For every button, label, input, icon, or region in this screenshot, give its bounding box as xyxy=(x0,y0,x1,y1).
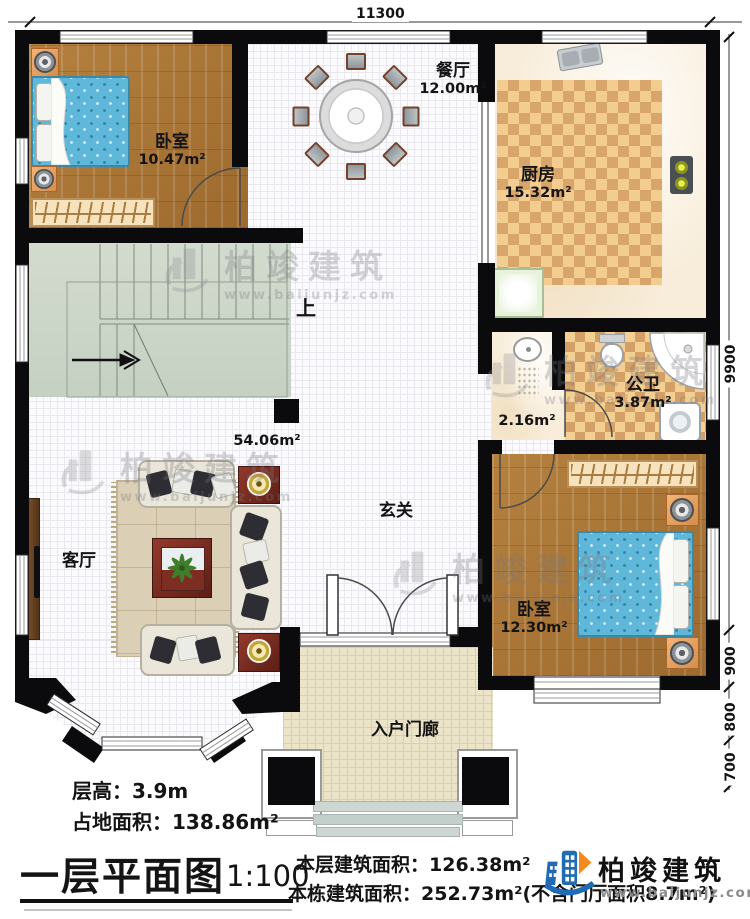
room-name: 客厅 xyxy=(62,552,96,571)
door-bathroom xyxy=(565,390,612,437)
window-right-bedroom2 xyxy=(707,528,719,620)
dim-top: 11300 xyxy=(352,6,409,22)
room-name: 入户门廊 xyxy=(371,721,439,740)
dim-right-900: 900 xyxy=(723,642,739,679)
room-label-porch: 入户门廊 xyxy=(371,721,439,740)
brand-url: www.baijunjz.com xyxy=(600,885,750,901)
room-label-living: 客厅 xyxy=(62,552,96,571)
stairs-arrow xyxy=(72,351,139,369)
door-bedroom1 xyxy=(182,168,240,226)
floor-area-text: 本层建筑面积：126.38m² xyxy=(296,850,530,877)
brand-name: 柏竣建筑 xyxy=(598,849,726,888)
room-name: 卧室 xyxy=(500,601,567,620)
room-label-foyer-area: 54.06m² xyxy=(233,433,300,449)
window-top-dining xyxy=(327,31,450,43)
land-area-text: 占地面积：138.86m² xyxy=(72,806,279,835)
plan-title-underline-light xyxy=(24,909,292,911)
room-area: 2.16m² xyxy=(498,413,555,429)
room-label-dining: 餐厅 12.00m² xyxy=(419,62,486,97)
dim-right-9900: 9900 xyxy=(723,341,739,388)
plan-title: 一层平面图 xyxy=(20,846,225,902)
floor-plan-page: 柏竣建筑www.baijunjz.com柏竣建筑www.baijunjz.com… xyxy=(0,0,750,919)
window-top-kitchen xyxy=(542,31,647,43)
window-right-bathroom xyxy=(707,345,719,420)
room-name: 餐厅 xyxy=(419,62,486,81)
room-area: 15.32m² xyxy=(504,185,571,201)
window-bottom-bedroom2 xyxy=(534,677,660,703)
door-bedroom2 xyxy=(500,454,554,508)
brand-block: 柏竣建筑 www.baijunjz.com xyxy=(540,843,750,909)
room-label-foyer: 玄关 xyxy=(379,502,413,521)
kitchen-sliding-door xyxy=(478,102,495,263)
room-name: 卧室 xyxy=(138,133,205,152)
brand-logo-icon xyxy=(542,847,596,905)
floor-height-text: 层高：3.9m xyxy=(72,775,188,804)
room-label-bathroom: 公卫 3.87m² xyxy=(614,376,671,411)
stairs-up-label: 上 xyxy=(296,292,316,321)
window-left-stairs xyxy=(16,265,28,362)
dim-right-800: 800 xyxy=(723,698,739,735)
room-label-bedroom2: 卧室 12.30m² xyxy=(500,601,567,636)
room-name: 玄关 xyxy=(379,502,413,521)
window-left-living xyxy=(16,555,28,635)
room-label-bedroom1: 卧室 10.47m² xyxy=(138,133,205,168)
entry-door-sill xyxy=(300,633,450,646)
window-bay-bottom xyxy=(102,737,202,750)
room-area: 10.47m² xyxy=(138,152,205,168)
room-area: 12.30m² xyxy=(500,620,567,636)
room-area: 54.06m² xyxy=(233,433,300,449)
plan-title-underline xyxy=(20,899,293,903)
room-name: 厨房 xyxy=(504,166,571,185)
room-label-kitchen: 厨房 15.32m² xyxy=(504,166,571,201)
room-label-corridor-area: 2.16m² xyxy=(498,413,555,429)
room-area: 12.00m² xyxy=(419,81,486,97)
room-name: 公卫 xyxy=(614,376,671,395)
entry-double-door xyxy=(327,575,458,635)
window-left-bedroom1 xyxy=(16,138,28,184)
room-area: 3.87m² xyxy=(614,395,671,411)
stairs-detail xyxy=(67,244,289,397)
dim-right-700: 700 xyxy=(723,748,739,785)
window-top-bedroom1 xyxy=(60,31,193,43)
